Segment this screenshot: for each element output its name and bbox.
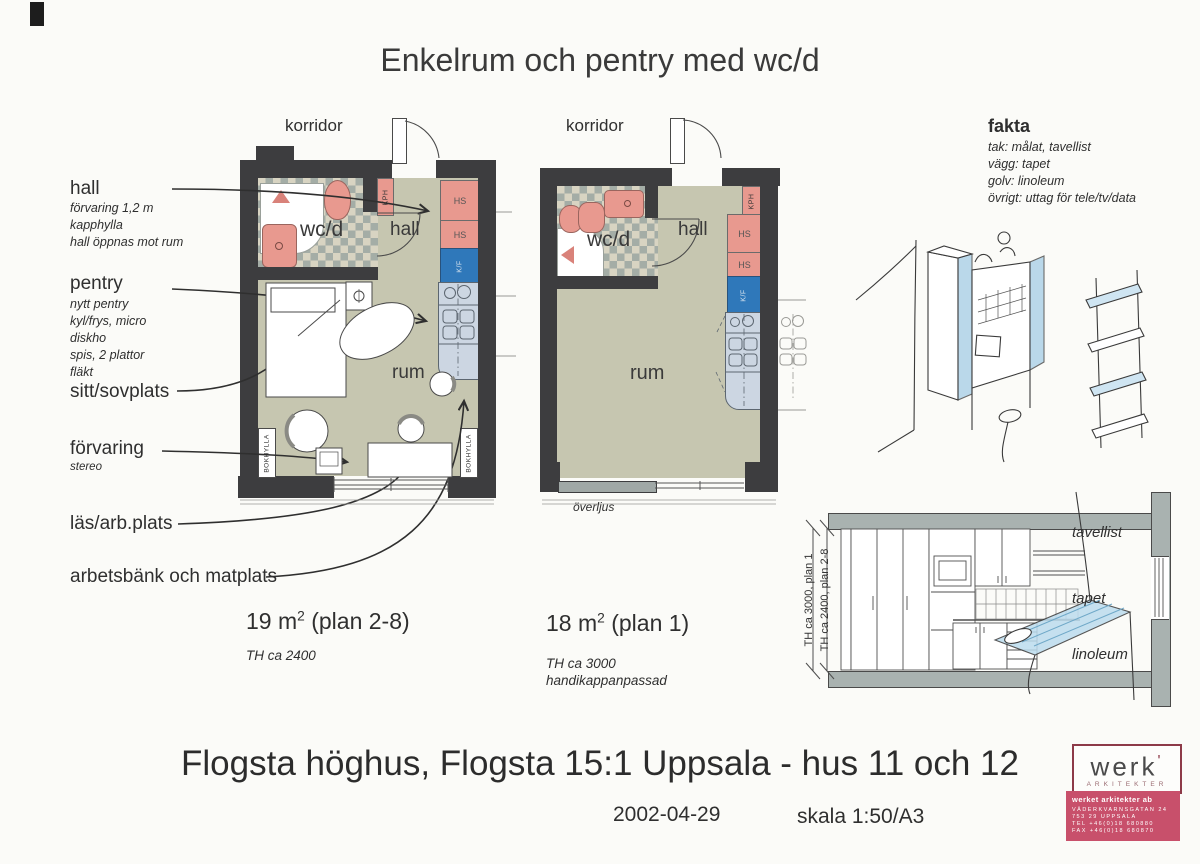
plan1-sink-drain	[275, 242, 283, 250]
fakta-title: fakta	[988, 116, 1030, 137]
plan1-pentry-counter	[438, 282, 480, 380]
label-hall: hall	[70, 178, 100, 200]
plan2-wall-left	[540, 168, 557, 492]
plan1-kph-label: KPH	[382, 189, 389, 205]
plan1-wall-left	[240, 160, 258, 478]
plan1-hs-lower-label: HS	[454, 230, 467, 240]
plan2-neighbour-fixtures	[778, 300, 806, 410]
plan1-wall-bottom-right	[448, 476, 496, 498]
label-pentry: pentry	[70, 273, 123, 295]
fakta-line-1: tak: målat, tavellist	[988, 140, 1091, 154]
fakta-line-4: övrigt: uttag för tele/tv/data	[988, 191, 1136, 205]
section-dim-plan28: TH ca 2400, plan 2-8	[819, 549, 831, 652]
label-pentry-note-3: diskho	[70, 331, 106, 345]
section-dim-plan1: TH ca 3000, plan 1	[803, 554, 815, 647]
plan1-korridor-label: korridor	[285, 116, 343, 136]
plan1-wcd-label: wc/d	[300, 218, 343, 242]
plan2-wall-wcd-bottom	[557, 276, 658, 289]
plan1-hs-cabinet-upper: HS	[440, 180, 480, 222]
label-pentry-note-2: kyl/frys, micro	[70, 314, 146, 328]
plan2-area-value: 18 m	[546, 610, 597, 636]
plan2-wall-top-right	[722, 168, 780, 186]
logo-address-line: VÄDERKVARNSGATAN 24	[1072, 807, 1174, 813]
plan2-shower-arrow-icon	[561, 246, 574, 264]
drawing-date: 2002-04-29	[613, 803, 720, 827]
plan2-area-label: 18 m2 (plan 1)	[546, 610, 689, 637]
plan1-wall-bottom-left	[238, 476, 334, 498]
logo-city-line: 753 29 UPPSALA	[1072, 814, 1174, 820]
plan1-wall-right	[478, 160, 496, 478]
plan2-hs-cabinet-upper: HS	[727, 214, 762, 254]
werk-logo-word: werk	[1091, 752, 1158, 782]
plan2-hs-cabinet-lower: HS	[727, 252, 762, 278]
plan2-kf-label: K/F	[741, 289, 748, 301]
plan1-area-value: 19 m	[246, 608, 297, 634]
scan-corner-mark	[30, 2, 44, 26]
plan2-kf-cabinet: K/F	[727, 276, 762, 314]
werk-logo-address-box: werket arkitekter ab VÄDERKVARNSGATAN 24…	[1066, 791, 1180, 841]
logo-firm-name: werket arkitekter ab	[1072, 795, 1174, 804]
plan2-hs-lower-label: HS	[738, 260, 751, 270]
plan1-rum-label: rum	[392, 362, 425, 384]
logo-fax-line: FAX +46(0)18 680870	[1072, 828, 1174, 834]
section-tavellist-label: tavellist	[1072, 524, 1122, 541]
label-sitt-sovplats: sitt/sovplats	[70, 381, 169, 403]
plan1-hs-cabinet-lower: HS	[440, 220, 480, 250]
plan2-kph-cabinet: KPH	[742, 186, 762, 216]
plan2-entry-door-leaf	[670, 118, 685, 164]
plan1-bokhylla-right-label: BOKHYLLA	[466, 434, 473, 472]
plan2-korridor-label: korridor	[566, 116, 624, 136]
label-hall-note-1: förvaring 1,2 m	[70, 201, 153, 215]
plan2-overljus-window	[558, 481, 657, 493]
drawing-scale: skala 1:50/A3	[797, 805, 924, 829]
plan1-kf-label: K/F	[456, 260, 463, 272]
plan1-area-label: 19 m2 (plan 2-8)	[246, 608, 410, 635]
plan2-wall-bottom-right	[745, 462, 778, 492]
plan1-bokhylla-left: BOKHYLLA	[258, 428, 276, 478]
architectural-drawing-page: Enkelrum och pentry med wc/d hall förvar…	[0, 0, 1200, 864]
plan2-kph-label: KPH	[749, 193, 756, 209]
plan2-hs-upper-label: HS	[738, 229, 751, 239]
plan2-wcd-label: wc/d	[587, 228, 630, 252]
plan1-hs-upper-label: HS	[454, 196, 467, 206]
plan1-toilet	[324, 180, 351, 220]
werk-logo-subtitle: ARKITEKTER	[1074, 781, 1180, 788]
fakta-line-2: vägg: tapet	[988, 157, 1050, 171]
plan2-hall-label: hall	[678, 219, 708, 241]
plan1-neighbour-ticks	[496, 212, 516, 356]
plan1-area-sup: 2	[297, 608, 305, 623]
section-right-wall-window	[1151, 556, 1169, 620]
label-hall-note-3: hall öppnas mot rum	[70, 235, 183, 249]
plan2-area-sup: 2	[597, 610, 605, 625]
label-pentry-note-5: fläkt	[70, 365, 93, 379]
plan1-bokhylla-left-label: BOKHYLLA	[264, 434, 271, 472]
werk-logo-mark: '	[1157, 753, 1163, 770]
label-pentry-note-1: nytt pentry	[70, 297, 128, 311]
page-title: Enkelrum och pentry med wc/d	[0, 42, 1200, 79]
plan1-wall-wcd-hall	[363, 160, 377, 212]
plan2-wall-right	[760, 186, 778, 492]
section-floor-slab	[828, 671, 1156, 688]
label-hall-note-2: kapphylla	[70, 218, 123, 232]
kitchen-sketch	[856, 232, 1148, 700]
plan1-wall-wcd-bottom	[258, 267, 378, 280]
plan1-shower-arrow-icon	[272, 190, 290, 203]
plan1-bokhylla-right: BOKHYLLA	[460, 428, 478, 478]
plan1-area-rest: (plan 2-8)	[305, 608, 410, 634]
plan2-pentry-counter	[725, 312, 762, 410]
plan2-th-label: TH ca 3000	[546, 656, 616, 671]
plan1-th-label: TH ca 2400	[246, 648, 316, 663]
fakta-line-3: golv: linoleum	[988, 174, 1064, 188]
plan2-wall-bottom-left	[540, 462, 560, 492]
werk-logo: werk' ARKITEKTER	[1072, 744, 1182, 794]
section-linoleum-label: linoleum	[1072, 646, 1128, 663]
label-las-arbplats: läs/arb.plats	[70, 513, 172, 535]
project-title: Flogsta höghus, Flogsta 15:1 Uppsala - h…	[0, 744, 1200, 784]
section-tapet-label: tapet	[1072, 590, 1105, 607]
plan2-rum-label: rum	[630, 362, 664, 385]
logo-tel-line: TEL +46(0)18 680880	[1072, 821, 1174, 827]
plan2-sink-drain	[624, 200, 631, 207]
plan2-wall-wcd-right	[645, 168, 658, 218]
label-forvaring-note-1: stereo	[70, 461, 102, 473]
label-forvaring: förvaring	[70, 438, 144, 460]
plan2-overljus-label: överljus	[573, 500, 614, 514]
plan1-entry-door-leaf	[392, 118, 407, 164]
label-pentry-note-4: spis, 2 plattor	[70, 348, 144, 362]
plan1-kf-cabinet: K/F	[440, 248, 480, 284]
plan1-kph-cabinet: KPH	[377, 178, 394, 216]
plan2-handikapp-label: handikappanpassad	[546, 673, 667, 688]
plan2-area-rest: (plan 1)	[605, 610, 689, 636]
plan1-hall-label: hall	[390, 219, 420, 241]
label-arbetsbank: arbetsbänk och matplats	[70, 566, 277, 588]
